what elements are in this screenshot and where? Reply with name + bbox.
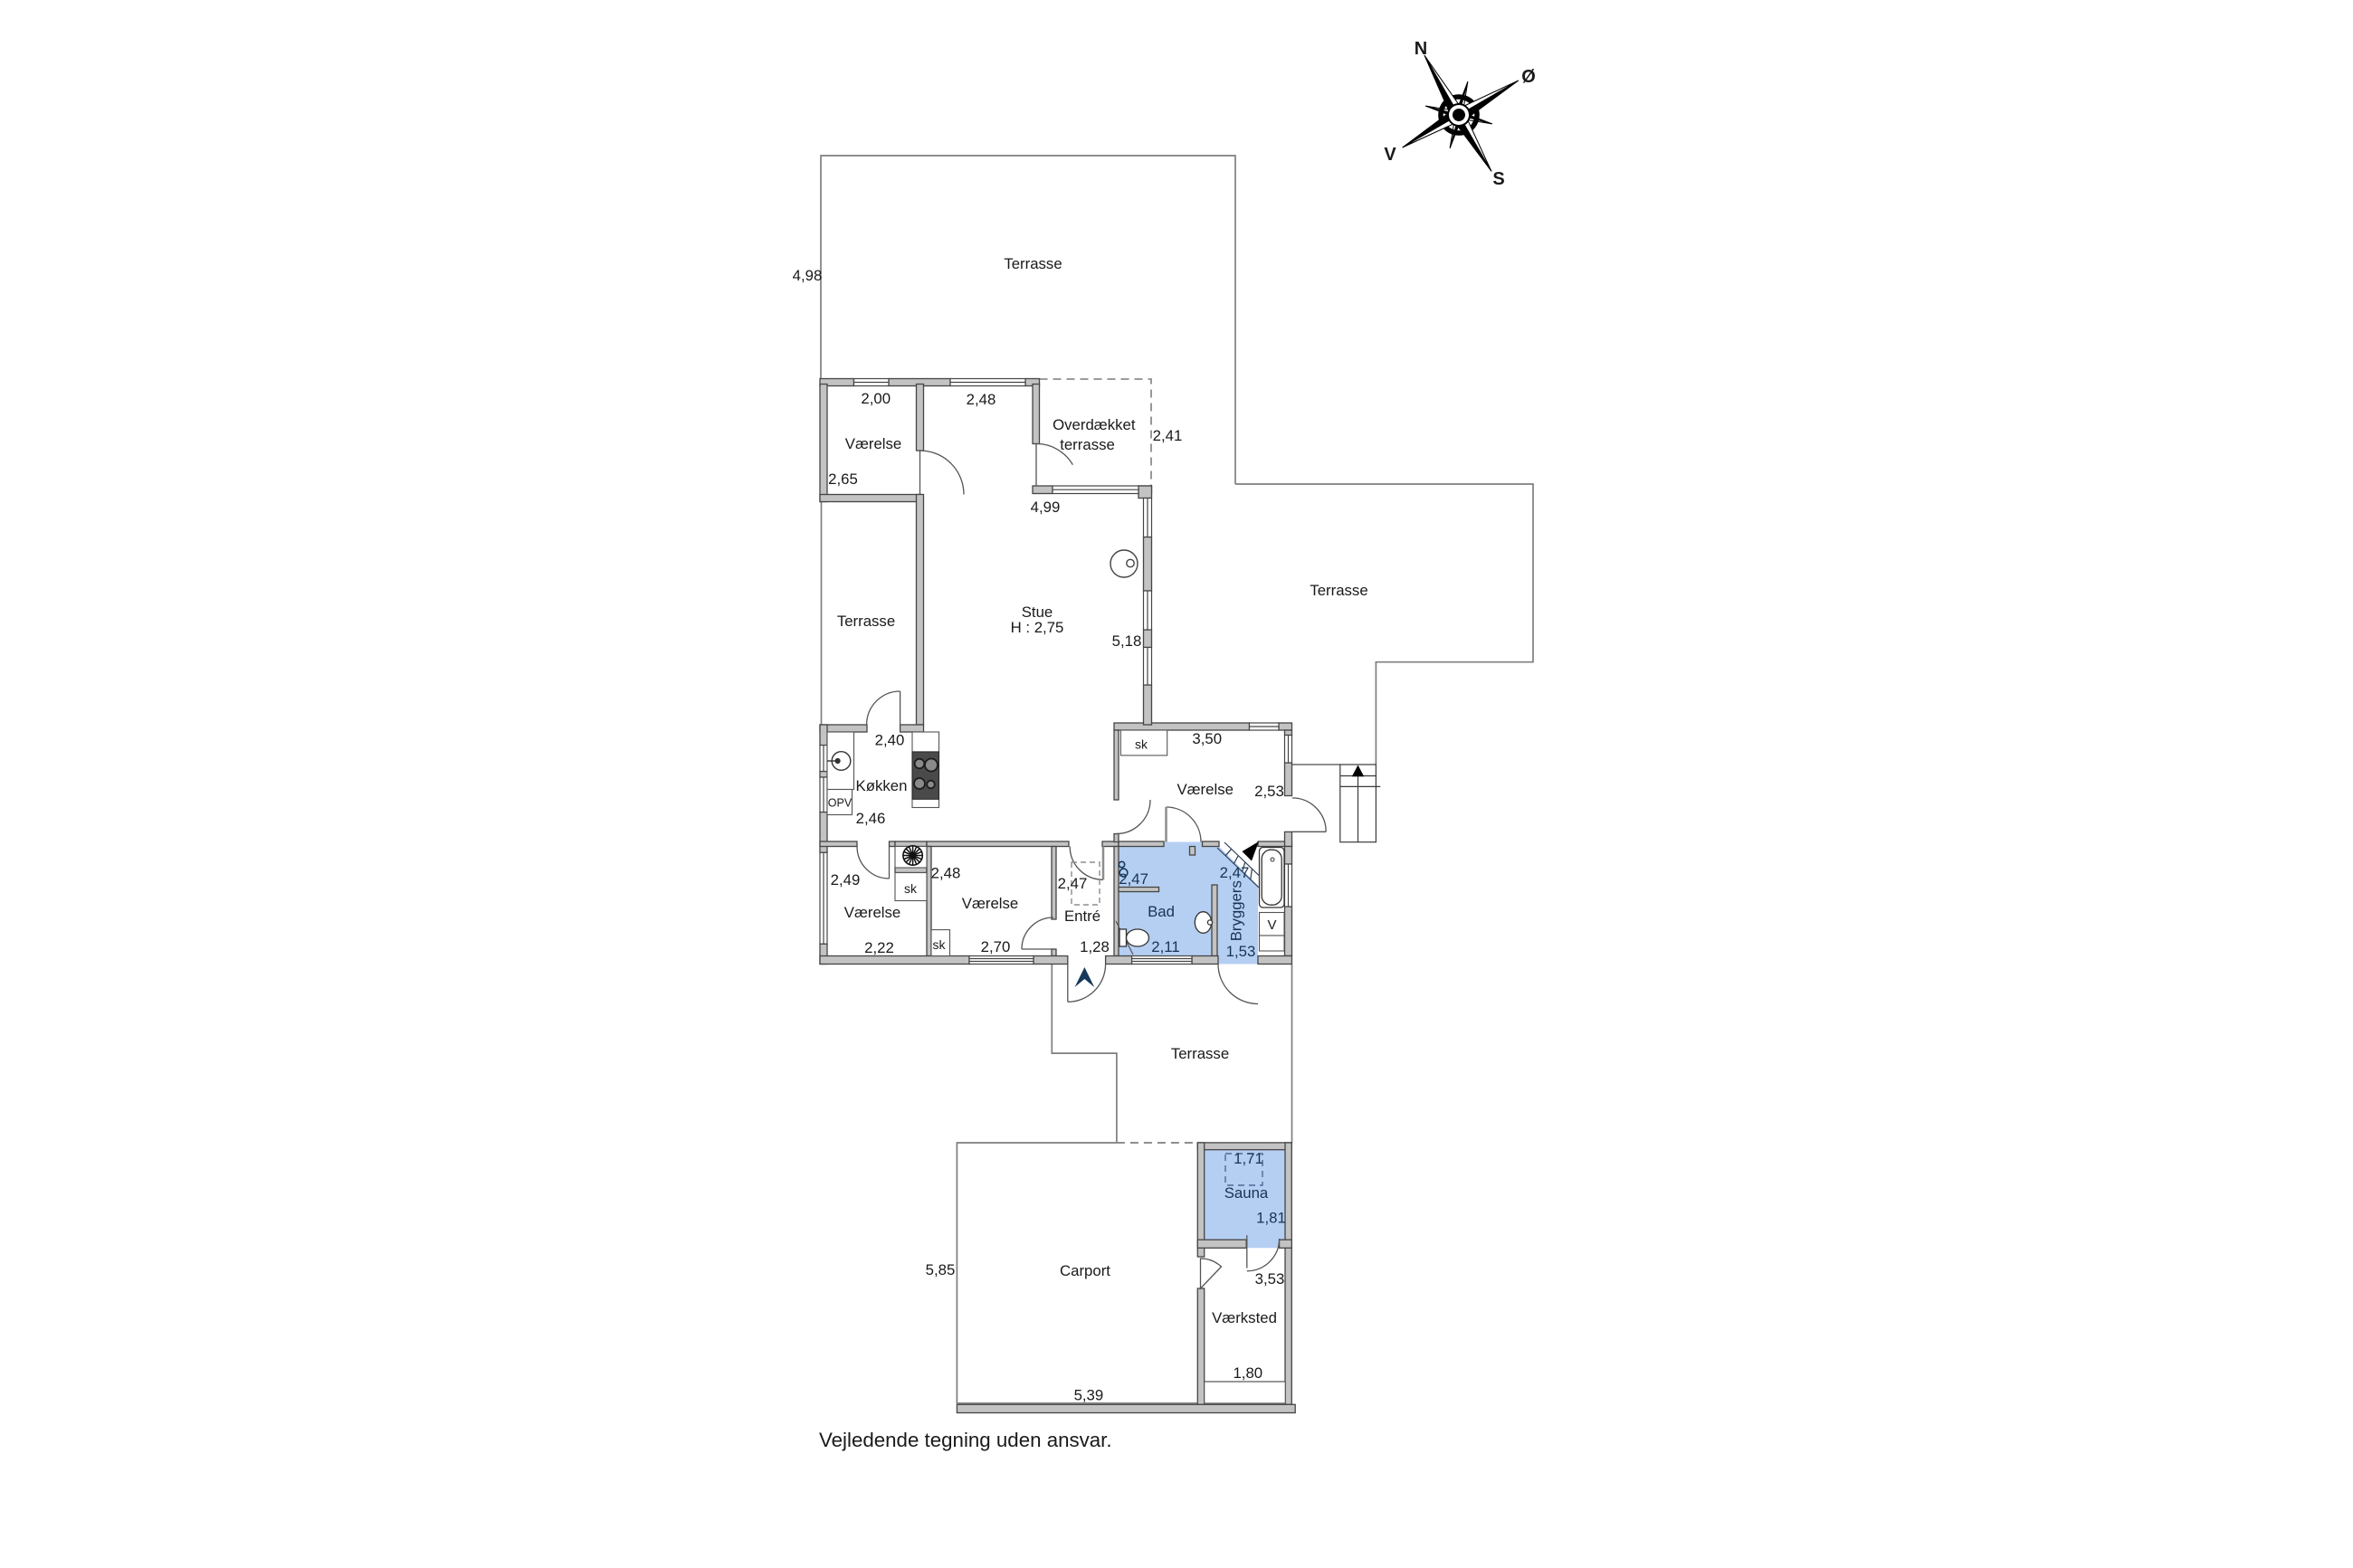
svg-text:V: V [1384,145,1396,165]
svg-text:Bad: Bad [1148,903,1175,920]
svg-text:H : 2,75: H : 2,75 [1011,619,1064,636]
svg-text:sk: sk [904,881,918,896]
svg-text:N: N [1415,39,1427,59]
svg-text:Ø: Ø [1521,67,1536,87]
svg-text:2,22: 2,22 [864,939,894,956]
svg-text:Terrasse: Terrasse [1004,255,1062,272]
svg-text:4,98: 4,98 [793,267,823,284]
svg-text:OPV: OPV [828,797,853,810]
svg-text:1,28: 1,28 [1080,938,1110,955]
svg-text:sk: sk [1135,737,1148,752]
svg-text:2,11: 2,11 [1151,938,1179,955]
svg-text:4,99: 4,99 [1031,499,1061,516]
svg-text:Vejledende tegning uden ansvar: Vejledende tegning uden ansvar. [819,1429,1112,1451]
svg-text:Bryggers: Bryggers [1227,880,1244,941]
svg-text:2,47: 2,47 [1220,864,1250,881]
svg-text:Carport: Carport [1060,1262,1110,1279]
svg-text:Terrasse: Terrasse [837,613,895,630]
svg-text:5,39: 5,39 [1074,1387,1104,1404]
svg-text:Køkken: Køkken [856,777,908,794]
svg-text:Terrasse: Terrasse [1171,1045,1229,1062]
svg-text:Værelse: Værelse [962,895,1019,912]
svg-text:terrasse: terrasse [1060,436,1115,453]
svg-text:5,85: 5,85 [926,1261,956,1278]
svg-text:3,53: 3,53 [1255,1270,1285,1288]
svg-text:sk: sk [933,937,947,952]
svg-text:1,81: 1,81 [1256,1210,1286,1227]
svg-text:2,53: 2,53 [1254,783,1284,800]
svg-text:3,50: 3,50 [1192,730,1222,747]
svg-text:2,49: 2,49 [831,871,861,889]
svg-text:Værelse: Værelse [1176,781,1234,798]
svg-text:2,70: 2,70 [981,938,1011,955]
svg-text:2,47: 2,47 [1058,875,1088,892]
svg-text:Sauna: Sauna [1224,1184,1269,1202]
svg-text:1,71: 1,71 [1234,1150,1263,1167]
svg-text:Værelse: Værelse [844,904,901,921]
svg-text:Terrasse: Terrasse [1310,582,1367,599]
svg-text:2,65: 2,65 [828,470,858,488]
svg-text:2,41: 2,41 [1153,427,1183,444]
svg-text:2,47: 2,47 [1119,870,1148,888]
svg-text:2,46: 2,46 [856,810,886,827]
svg-text:V: V [1267,917,1276,933]
svg-text:S: S [1492,169,1504,189]
svg-text:5,18: 5,18 [1112,632,1142,650]
svg-text:Overdækket: Overdækket [1053,416,1136,433]
svg-text:2,48: 2,48 [967,391,996,408]
svg-text:2,00: 2,00 [861,390,891,407]
svg-text:Entré: Entré [1064,908,1100,925]
svg-text:2,48: 2,48 [931,865,961,882]
svg-text:Værksted: Værksted [1212,1309,1277,1326]
svg-text:Værelse: Værelse [845,435,902,452]
svg-text:2,40: 2,40 [875,732,905,749]
svg-text:1,53: 1,53 [1226,943,1256,960]
svg-text:1,80: 1,80 [1233,1364,1262,1382]
